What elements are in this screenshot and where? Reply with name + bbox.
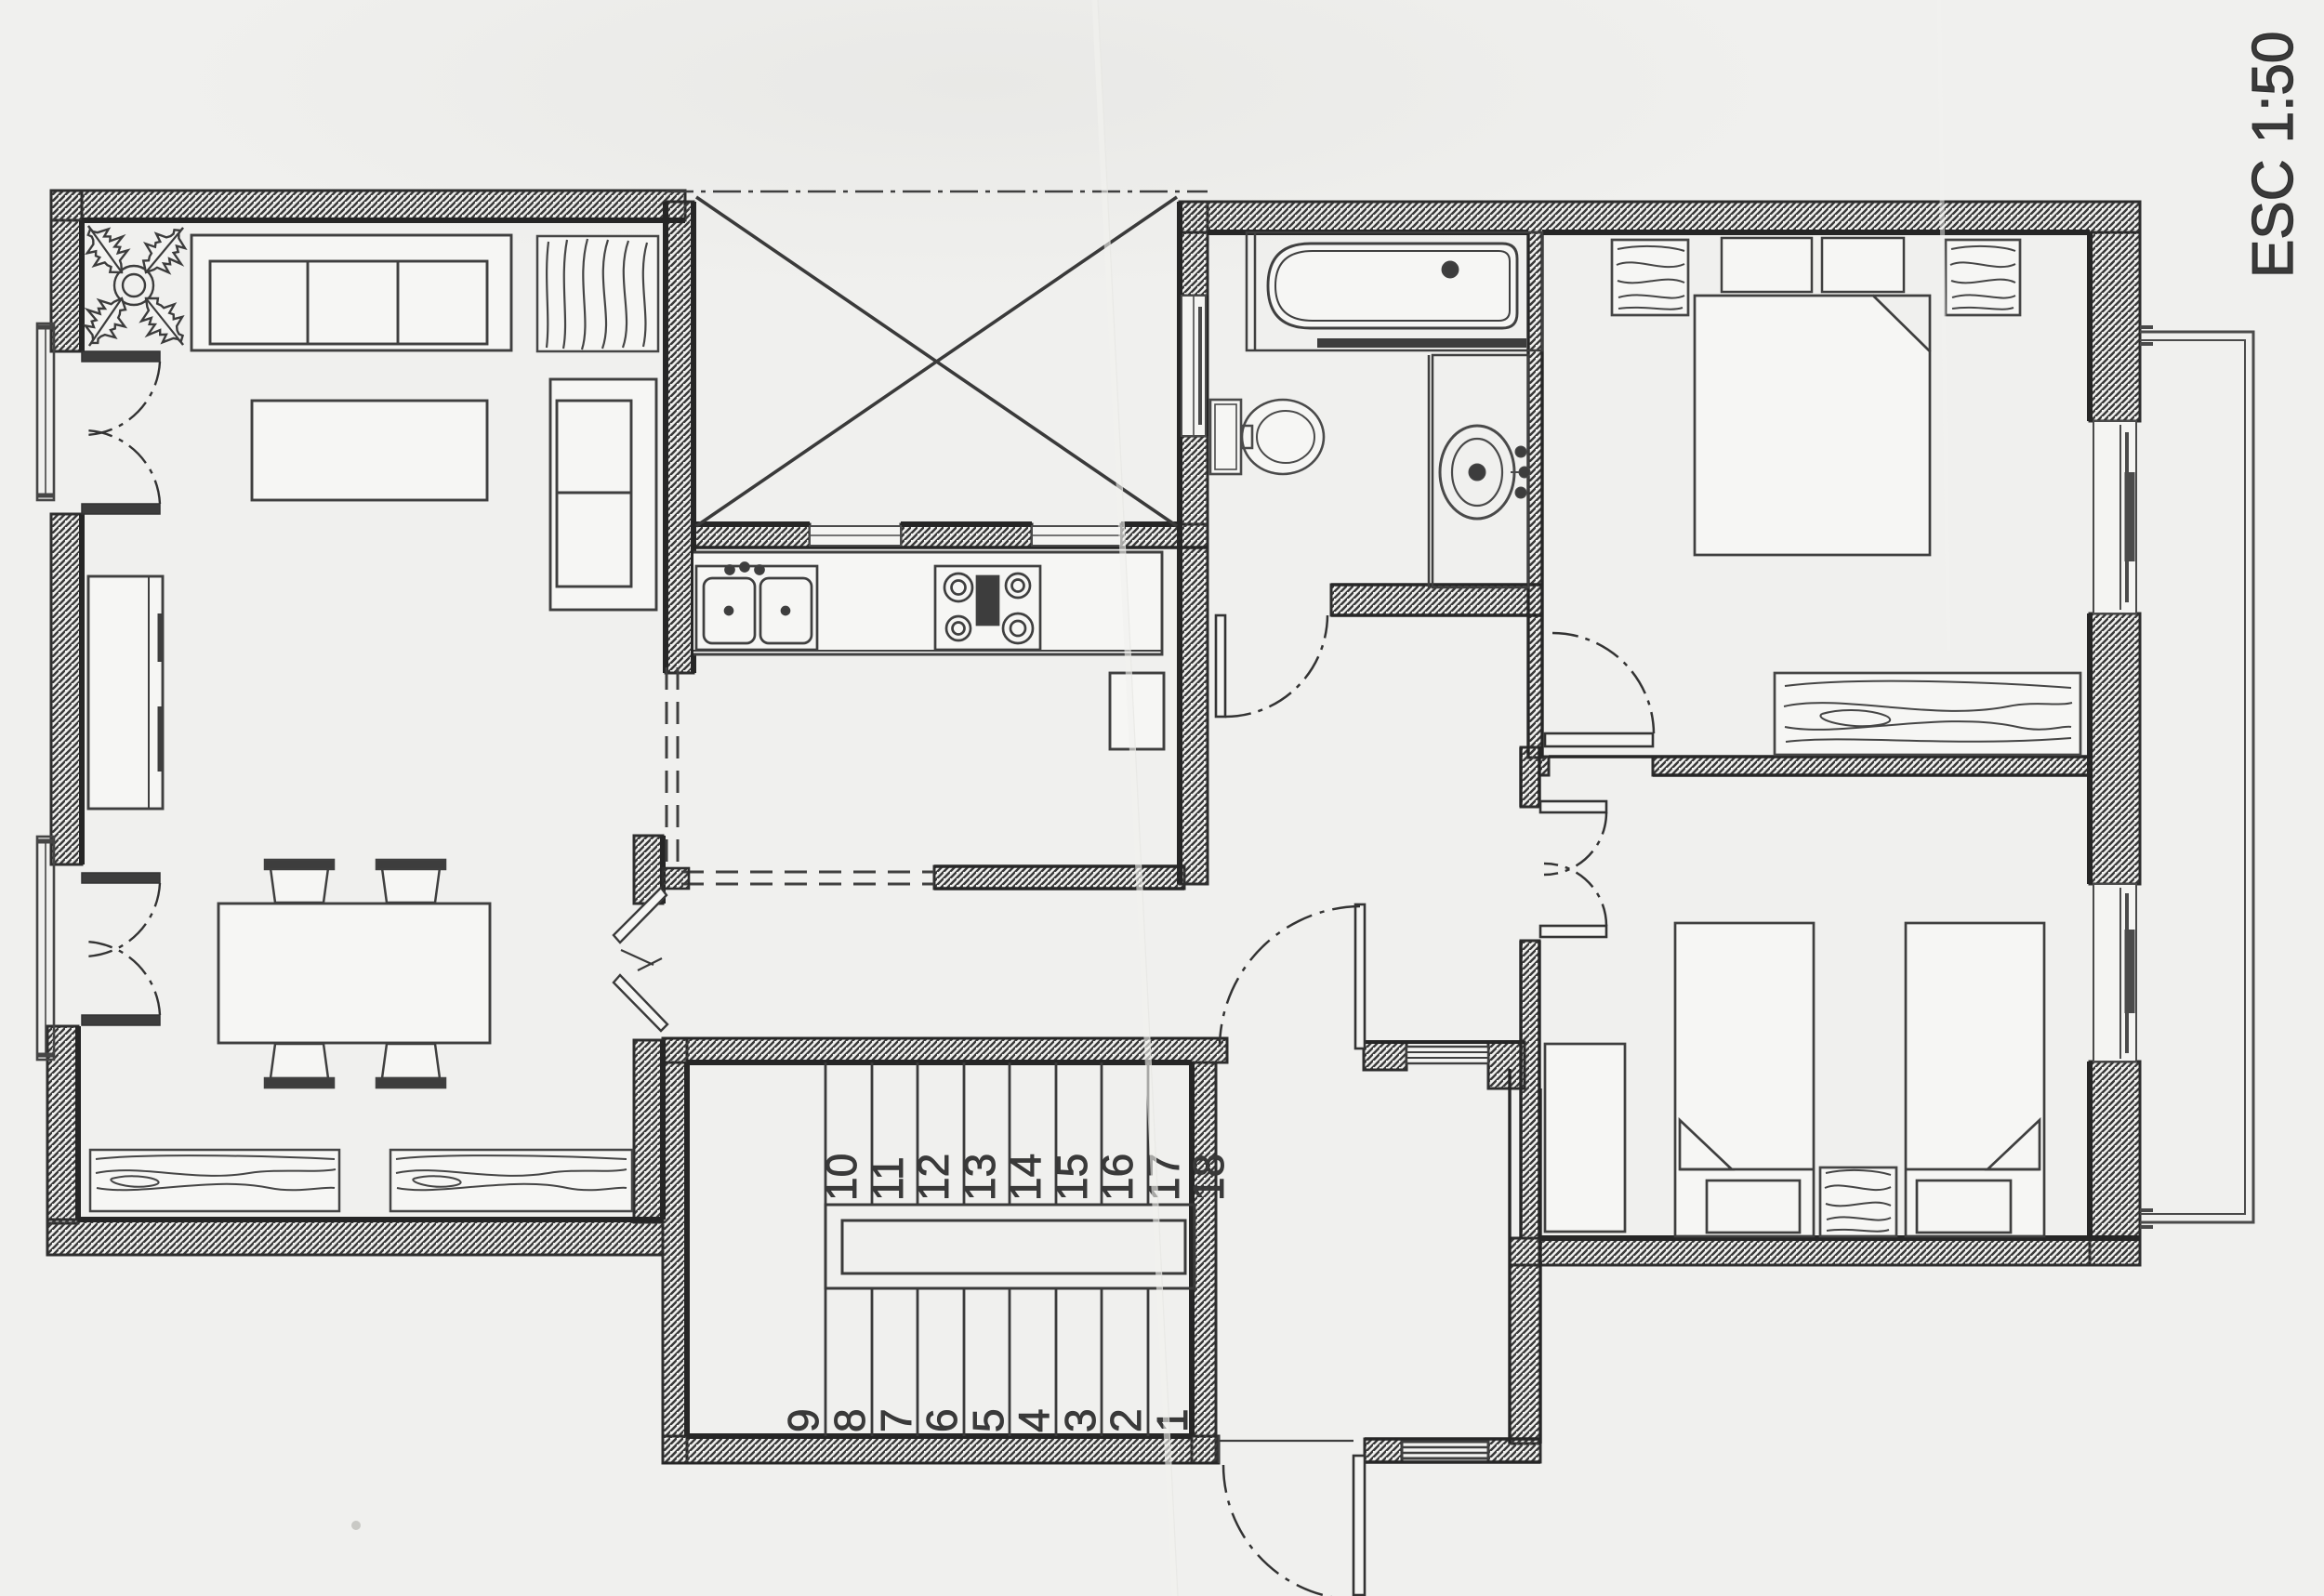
svg-text:17: 17 [1140, 1154, 1188, 1201]
svg-text:10: 10 [817, 1154, 865, 1201]
svg-text:ESC 1:50: ESC 1:50 [2241, 32, 2305, 278]
svg-text:6: 6 [918, 1408, 966, 1432]
svg-text:3: 3 [1056, 1408, 1104, 1432]
svg-text:16: 16 [1093, 1154, 1142, 1201]
svg-text:1: 1 [1148, 1408, 1196, 1432]
svg-text:5: 5 [964, 1408, 1012, 1432]
svg-text:18: 18 [1184, 1154, 1233, 1201]
svg-text:13: 13 [956, 1154, 1004, 1201]
svg-text:9: 9 [779, 1408, 827, 1432]
svg-text:4: 4 [1010, 1408, 1058, 1432]
svg-text:8: 8 [825, 1408, 874, 1432]
svg-text:12: 12 [909, 1154, 957, 1201]
svg-text:7: 7 [872, 1408, 920, 1432]
svg-text:14: 14 [1001, 1154, 1050, 1201]
svg-text:2: 2 [1102, 1408, 1150, 1432]
svg-text:11: 11 [864, 1156, 912, 1201]
svg-text:15: 15 [1048, 1154, 1096, 1201]
